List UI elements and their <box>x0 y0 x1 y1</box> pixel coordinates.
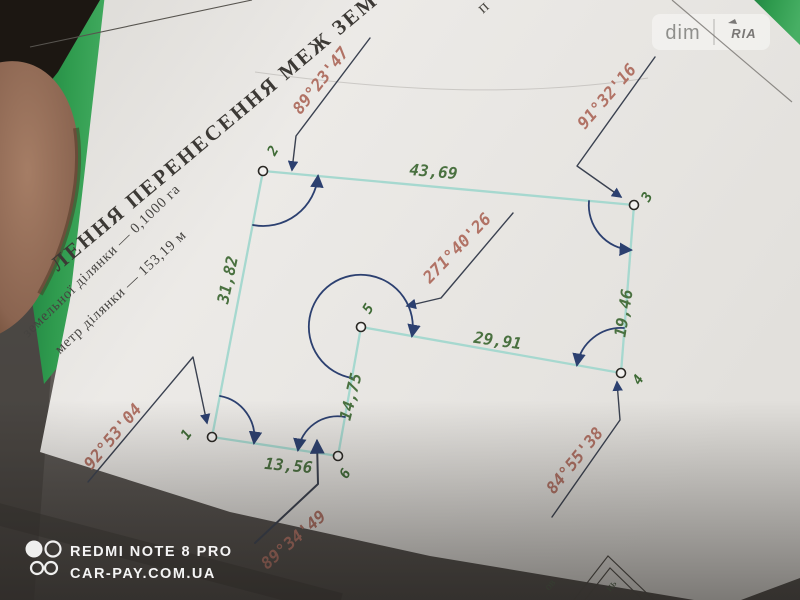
camera-watermark-device: REDMI NOTE 8 PRO <box>70 544 233 560</box>
badge-ria-text: RIA <box>731 26 756 41</box>
vertex-marker-2 <box>259 167 268 176</box>
camera-watermark-site: CAR-PAY.COM.UA <box>70 566 216 582</box>
photo-of-survey-document: ЛЕННЯ ПЕРЕНЕСЕННЯ МЕЖ ЗЕМ п земельної ді… <box>0 0 800 600</box>
vertex-marker-4 <box>617 369 626 378</box>
vertex-marker-3 <box>630 201 639 210</box>
vertex-marker-5 <box>357 323 366 332</box>
camera-watermark-icon-dot <box>26 541 43 558</box>
badge-dim-text: dim <box>665 22 700 44</box>
